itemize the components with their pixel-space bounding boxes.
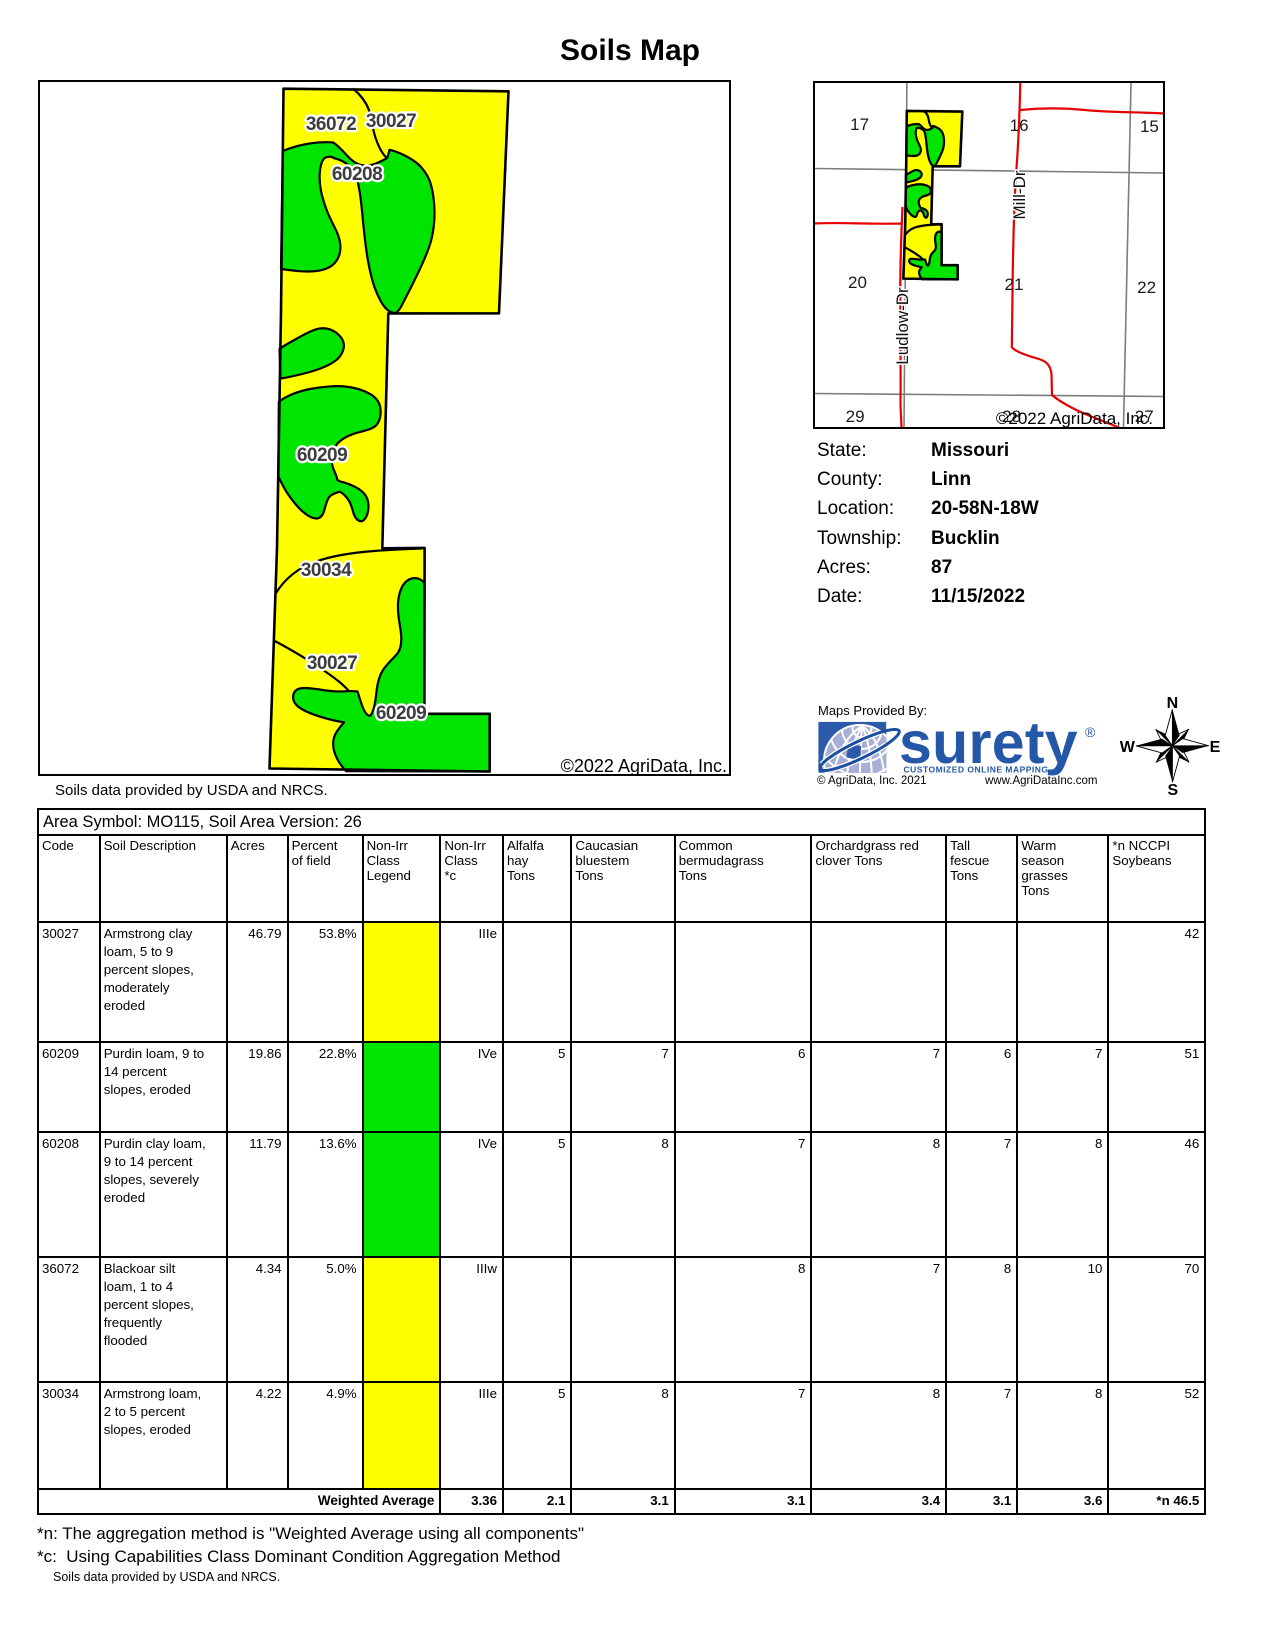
svg-text:60209: 60209 [297,445,347,466]
svg-text:30027: 30027 [307,653,357,674]
svg-text:29: 29 [846,407,865,426]
svg-text:17: 17 [850,115,869,134]
svg-text:E: E [1210,739,1221,756]
svg-text:15: 15 [1140,117,1159,136]
svg-text:20: 20 [848,273,867,292]
svg-text:®: ® [1085,724,1096,740]
svg-text:16: 16 [1010,116,1029,135]
svg-text:60208: 60208 [332,164,382,185]
svg-text:Mill-Dr: Mill-Dr [1010,170,1029,219]
svg-text:30034: 30034 [301,560,352,581]
svg-text:60209: 60209 [376,703,426,724]
svg-text:S: S [1167,782,1178,799]
svg-text:30027: 30027 [366,111,416,132]
svg-text:©2022 AgriData, Inc.: ©2022 AgriData, Inc. [996,409,1153,427]
svg-text:Ludlow-Dr: Ludlow-Dr [893,287,912,365]
svg-text:N: N [1167,695,1179,712]
svg-text:W: W [1120,739,1136,756]
svg-text:36072: 36072 [306,114,356,135]
svg-text:CUSTOMIZED ONLINE MAPPING: CUSTOMIZED ONLINE MAPPING [904,765,1049,775]
svg-text:22: 22 [1137,278,1156,297]
svg-text:21: 21 [1005,275,1024,294]
svg-text:©2022 AgriData, Inc.: ©2022 AgriData, Inc. [561,756,727,774]
